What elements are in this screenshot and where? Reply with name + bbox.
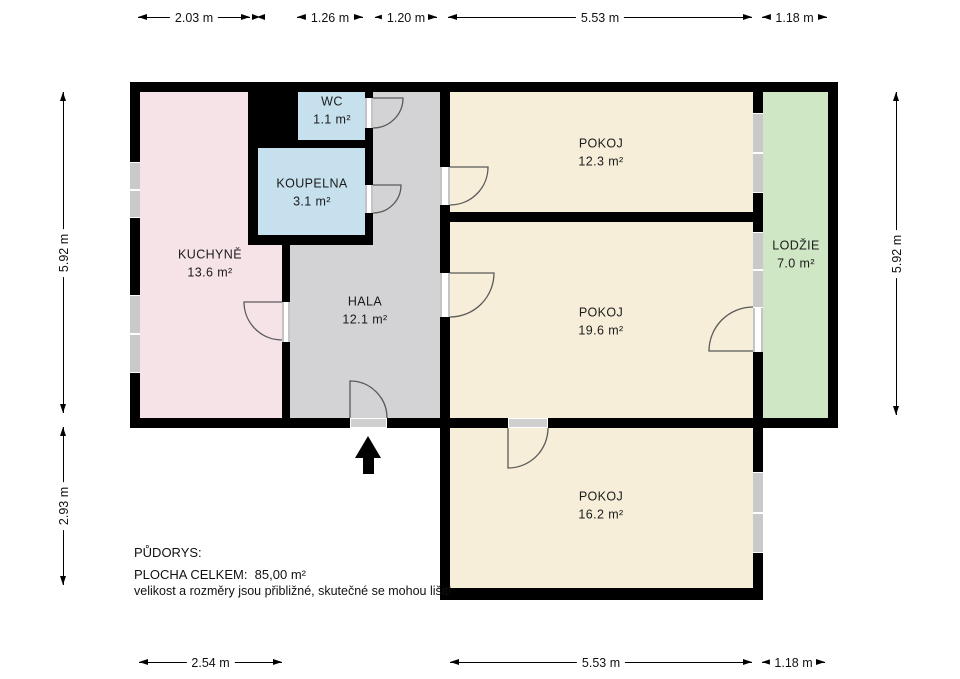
room-name: LODŽIE (772, 238, 820, 256)
dim-label: 5.92 m (57, 228, 71, 276)
dim-label: 2.93 m (57, 482, 71, 530)
entrance-arrow-icon (355, 436, 381, 474)
door-pokoj19 (450, 273, 494, 317)
plan-disclaimer: velikost a rozměry jsou přibližné, skute… (134, 583, 452, 598)
dim-bottom-3: 1.18 m (762, 662, 825, 663)
total-area-label: PLOCHA CELKEM: (134, 567, 247, 582)
dim-top-tiny-marker (252, 17, 265, 18)
room-label-hala: HALA 12.1 m² (342, 294, 387, 329)
plan-title: PŮDORYS: (134, 545, 202, 560)
room-label-koupelna: KOUPELNA 3.1 m² (276, 176, 347, 211)
room-name: HALA (342, 294, 387, 312)
room-name: KUCHYNĚ (178, 247, 242, 265)
room-area: 7.0 m² (772, 255, 820, 273)
total-area-value: 85,00 m² (255, 567, 306, 582)
room-label-pokoj-19: POKOJ 19.6 m² (578, 305, 623, 340)
room-label-pokoj-16: POKOJ 16.2 m² (578, 489, 623, 524)
door-kuchyne (244, 302, 282, 340)
door-pokoj16 (508, 428, 548, 468)
dim-label: 5.92 m (890, 229, 904, 277)
dim-right-1: 5.92 m (896, 92, 897, 415)
dim-label: 1.20 m (382, 11, 430, 25)
room-name: POKOJ (578, 305, 623, 323)
dim-top-1: 2.03 m (138, 17, 250, 18)
dim-top-2: 1.26 m (297, 17, 363, 18)
door-koupelna (373, 185, 401, 213)
door-wc (373, 98, 403, 128)
room-area: 13.6 m² (178, 264, 242, 282)
room-label-wc: WC 1.1 m² (313, 94, 351, 129)
dim-left-2: 2.93 m (63, 427, 64, 585)
dim-top-3: 1.20 m (375, 17, 437, 18)
dim-label: 1.26 m (306, 11, 354, 25)
dim-top-5: 1.18 m (762, 17, 827, 18)
dim-bottom-1: 2.54 m (139, 662, 282, 663)
dim-left-1: 5.92 m (63, 92, 64, 413)
room-name: WC (313, 94, 351, 112)
door-balcony (709, 307, 753, 351)
room-name: POKOJ (578, 489, 623, 507)
room-label-lodzie: LODŽIE 7.0 m² (772, 238, 820, 273)
plan-total-area: PLOCHA CELKEM: 85,00 m² (134, 567, 306, 582)
dim-label: 2.03 m (170, 11, 218, 25)
dim-label: 1.18 m (770, 11, 818, 25)
room-area: 1.1 m² (313, 111, 351, 129)
disclaimer-text: velikost a rozměry jsou přibližné, skute… (134, 584, 452, 598)
room-area: 19.6 m² (578, 322, 623, 340)
dim-top-4: 5.53 m (448, 17, 752, 18)
floorplan-canvas: KUCHYNĚ 13.6 m² WC 1.1 m² KOUPELNA 3.1 m… (0, 0, 960, 679)
dim-label: 2.54 m (186, 656, 234, 670)
room-label-pokoj-12: POKOJ 12.3 m² (578, 136, 623, 171)
room-area: 3.1 m² (276, 193, 347, 211)
door-entrance (350, 381, 387, 418)
room-name: KOUPELNA (276, 176, 347, 194)
dim-label: 5.53 m (577, 656, 625, 670)
room-area: 16.2 m² (578, 506, 623, 524)
dim-label: 1.18 m (769, 656, 817, 670)
room-label-kuchyne: KUCHYNĚ 13.6 m² (178, 247, 242, 282)
dim-label: 5.53 m (576, 11, 624, 25)
door-pokoj12 (450, 167, 488, 205)
room-name: POKOJ (578, 136, 623, 154)
room-area: 12.3 m² (578, 153, 623, 171)
dim-bottom-2: 5.53 m (450, 662, 752, 663)
room-area: 12.1 m² (342, 311, 387, 329)
